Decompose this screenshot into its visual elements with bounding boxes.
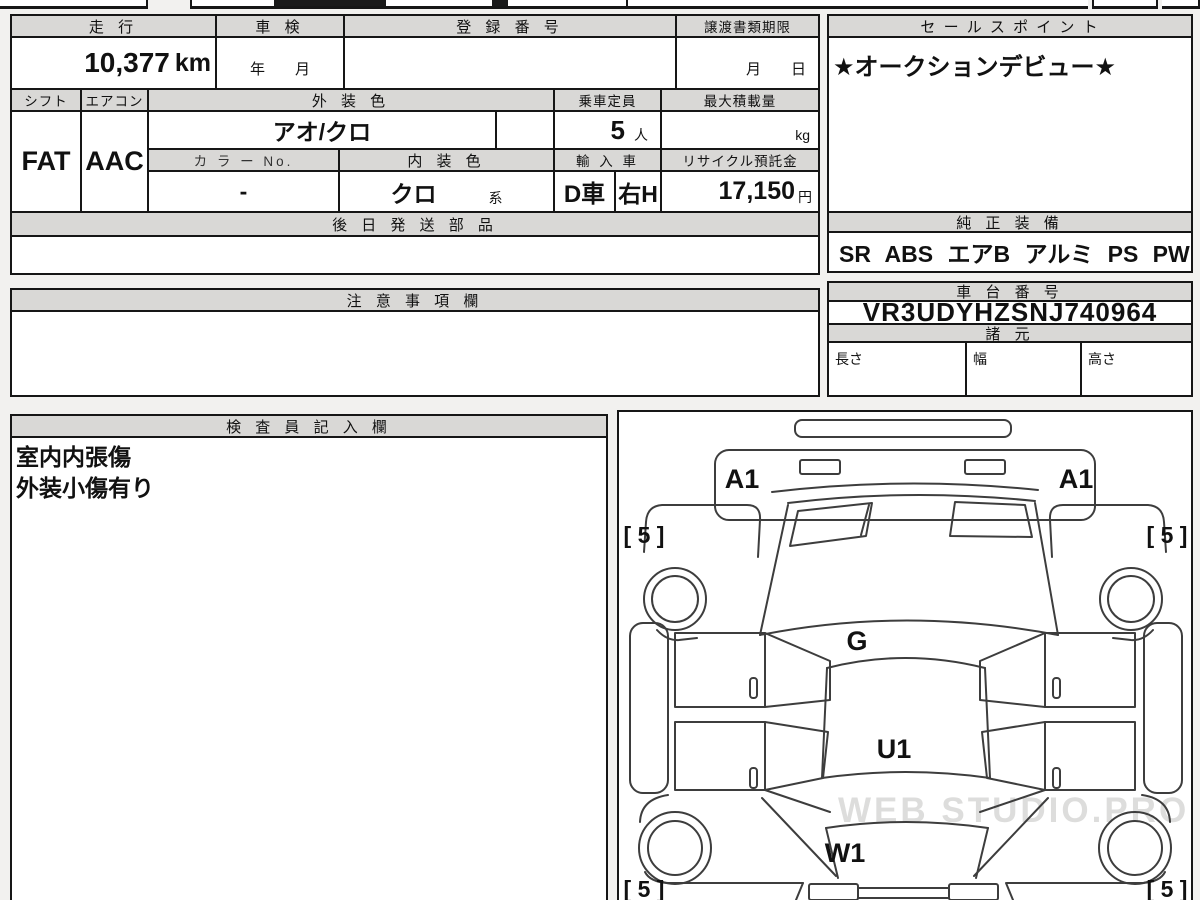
recycle-deposit-header: リサイクル預託金 <box>660 148 820 172</box>
wheel-rear-left <box>639 812 711 884</box>
max-load-value: kg <box>660 110 820 150</box>
import-car-value-1: D車 <box>553 170 616 213</box>
interior-color-value: クロ系 <box>338 170 555 213</box>
registration-number-value <box>343 36 677 90</box>
recycle-deposit-value: 17,150円 <box>660 170 820 213</box>
notes-box <box>10 310 820 397</box>
later-parts-header: 後 日 発 送 部 品 <box>10 211 820 237</box>
rear-bumper-lines <box>796 883 1013 900</box>
shift-value: FAT <box>10 110 82 213</box>
wheel-front-right <box>1100 568 1162 630</box>
notes-header: 注 意 事 項 欄 <box>10 288 820 312</box>
tire-depth-rear-right: [ 5 ] <box>1147 876 1188 900</box>
rear-door-right-shape <box>1045 722 1135 790</box>
exterior-color-header: 外 装 色 <box>147 88 555 112</box>
spec-width-label: 幅 <box>973 349 987 369</box>
wheel-rear-left-inner <box>648 821 702 875</box>
windshield-bottom-arc <box>760 621 1058 636</box>
equipment-header: 純 正 装 備 <box>827 211 1193 233</box>
aircon-header: エアコン <box>80 88 149 112</box>
interior-color-header: 内 装 色 <box>338 148 555 172</box>
exterior-color-sub-cell <box>495 110 555 150</box>
chassis-number-value: VR3UDYHZSNJ740964 <box>827 300 1193 325</box>
tire-depth-front-right: [ 5 ] <box>1147 522 1188 548</box>
sales-point-box: ★オークションデビュー★ <box>827 36 1193 213</box>
door-handle-rear-left <box>750 768 757 788</box>
color-no-value: - <box>147 170 340 213</box>
front-fascia-shape <box>715 450 1095 520</box>
cutoff-row-seg5 <box>1092 0 1158 9</box>
windshield-right-edge <box>1035 503 1058 635</box>
panel-code-roof: U1 <box>877 734 912 764</box>
capacity-header: 乗車定員 <box>553 88 662 112</box>
mileage-number: 10,377 <box>84 47 170 79</box>
rear-quarter-right <box>974 795 1170 883</box>
later-parts-box <box>10 235 820 275</box>
shift-header: シフト <box>10 88 82 112</box>
front-door-left-shape <box>675 633 765 707</box>
wheel-front-left <box>644 568 706 630</box>
rear-quarter-left <box>640 795 836 883</box>
cutoff-row-seg6 <box>1162 0 1200 9</box>
spec-height-cell: 高さ <box>1080 341 1193 397</box>
recycle-amount: 17,150 <box>719 177 795 206</box>
panel-code-hood: G <box>846 626 867 656</box>
panel-code-a1-left: A1 <box>725 464 760 494</box>
roof-front-arc <box>827 658 985 668</box>
shaken-header: 車 検 <box>215 14 345 38</box>
shaken-value: 年 月 <box>215 36 345 90</box>
taillight-right-shape <box>949 884 998 900</box>
side-sill-right <box>1144 623 1182 793</box>
rear-door-left-slant <box>765 722 830 812</box>
wheel-front-right-inner <box>1108 576 1154 622</box>
headlight-left-shape <box>800 460 840 474</box>
inspector-note-line1: 室内内張傷 <box>16 442 606 473</box>
cutoff-row-seg1 <box>0 0 148 9</box>
front-door-right-shape <box>1045 633 1135 707</box>
tire-depth-rear-left: [ 5 ] <box>624 876 665 900</box>
capacity-value: 5人 <box>553 110 662 150</box>
wheel-rear-right-inner <box>1108 821 1162 875</box>
inspector-header: 検 査 員 記 入 欄 <box>10 414 608 438</box>
mileage-unit: km <box>175 49 211 78</box>
grille-arc <box>772 483 1038 492</box>
rear-door-left-shape <box>675 722 765 790</box>
color-no-header: カ ラ ー No. <box>147 148 340 172</box>
interior-color-suffix: 系 <box>489 188 503 208</box>
equipment-box: SR ABS エアB アルミ PS PW <box>827 231 1193 273</box>
door-handle-front-left <box>750 678 757 698</box>
capacity-unit: 人 <box>634 125 648 145</box>
mileage-header: 走 行 <box>10 14 217 38</box>
cutoff-row-seg2 <box>190 0 628 9</box>
rear-window-top-arc <box>822 772 990 778</box>
panel-code-rear: W1 <box>825 838 866 868</box>
car-diagram: A1 A1 [ 5 ] [ 5 ] G U1 W1 [ 5 ] [ 5 ] <box>617 410 1193 900</box>
cutoff-text-fragment <box>492 0 508 6</box>
wiper-left-shape <box>790 503 872 546</box>
interior-color-name: クロ <box>391 175 437 209</box>
transfer-docs-header: 譲渡書類期限 <box>675 14 820 38</box>
recycle-unit: 円 <box>798 187 812 207</box>
cowl-arc <box>788 495 1035 503</box>
spec-width-cell: 幅 <box>965 341 1082 397</box>
tire-depth-front-left: [ 5 ] <box>624 522 665 548</box>
wheel-rear-right <box>1099 812 1171 884</box>
door-handle-rear-right <box>1053 768 1060 788</box>
front-bumper-shape <box>795 420 1011 437</box>
front-door-left-slant <box>765 633 830 707</box>
aircon-value: AAC <box>80 110 149 213</box>
inspector-box: 室内内張傷 外装小傷有り <box>10 436 608 900</box>
specs-header: 諸 元 <box>827 323 1193 343</box>
cutoff-row-seg4 <box>826 0 1088 9</box>
exterior-color-value: アオ/クロ <box>147 110 497 150</box>
front-door-right-slant <box>980 633 1045 707</box>
sales-point-text: ★オークションデビュー★ <box>833 47 1191 82</box>
rear-window-bottom-arc <box>826 822 988 828</box>
max-load-header: 最大積載量 <box>660 88 820 112</box>
cutoff-row-seg3 <box>628 0 828 9</box>
spec-length-label: 長さ <box>835 349 863 369</box>
windshield-left-edge <box>760 505 788 635</box>
transfer-docs-value: 月 日 <box>675 36 820 90</box>
side-sill-left <box>630 623 668 793</box>
wheel-front-left-inner <box>652 576 698 622</box>
import-car-value-2: 右H <box>614 170 662 213</box>
headlight-right-shape <box>965 460 1005 474</box>
import-car-header: 輸 入 車 <box>553 148 662 172</box>
spec-length-cell: 長さ <box>827 341 967 397</box>
inspector-note-line2: 外装小傷有り <box>16 473 606 504</box>
trunk-right-edge <box>976 828 988 878</box>
taillight-left-shape <box>809 884 858 900</box>
registration-number-header: 登 録 番 号 <box>343 14 677 38</box>
equipment-text: SR ABS エアB アルミ PS PW <box>839 235 1190 269</box>
panel-code-a1-right: A1 <box>1059 464 1094 494</box>
auction-sheet: 走 行 車 検 登 録 番 号 譲渡書類期限 10,377km 年 月 月 日 … <box>0 0 1200 900</box>
spec-height-label: 高さ <box>1088 349 1116 369</box>
capacity-number: 5 <box>611 115 625 146</box>
door-handle-front-right <box>1053 678 1060 698</box>
sales-point-header: セ ー ル ス ポ イ ン ト <box>827 14 1193 38</box>
cutoff-text-fragment <box>274 0 386 6</box>
mileage-value: 10,377km <box>10 36 217 90</box>
